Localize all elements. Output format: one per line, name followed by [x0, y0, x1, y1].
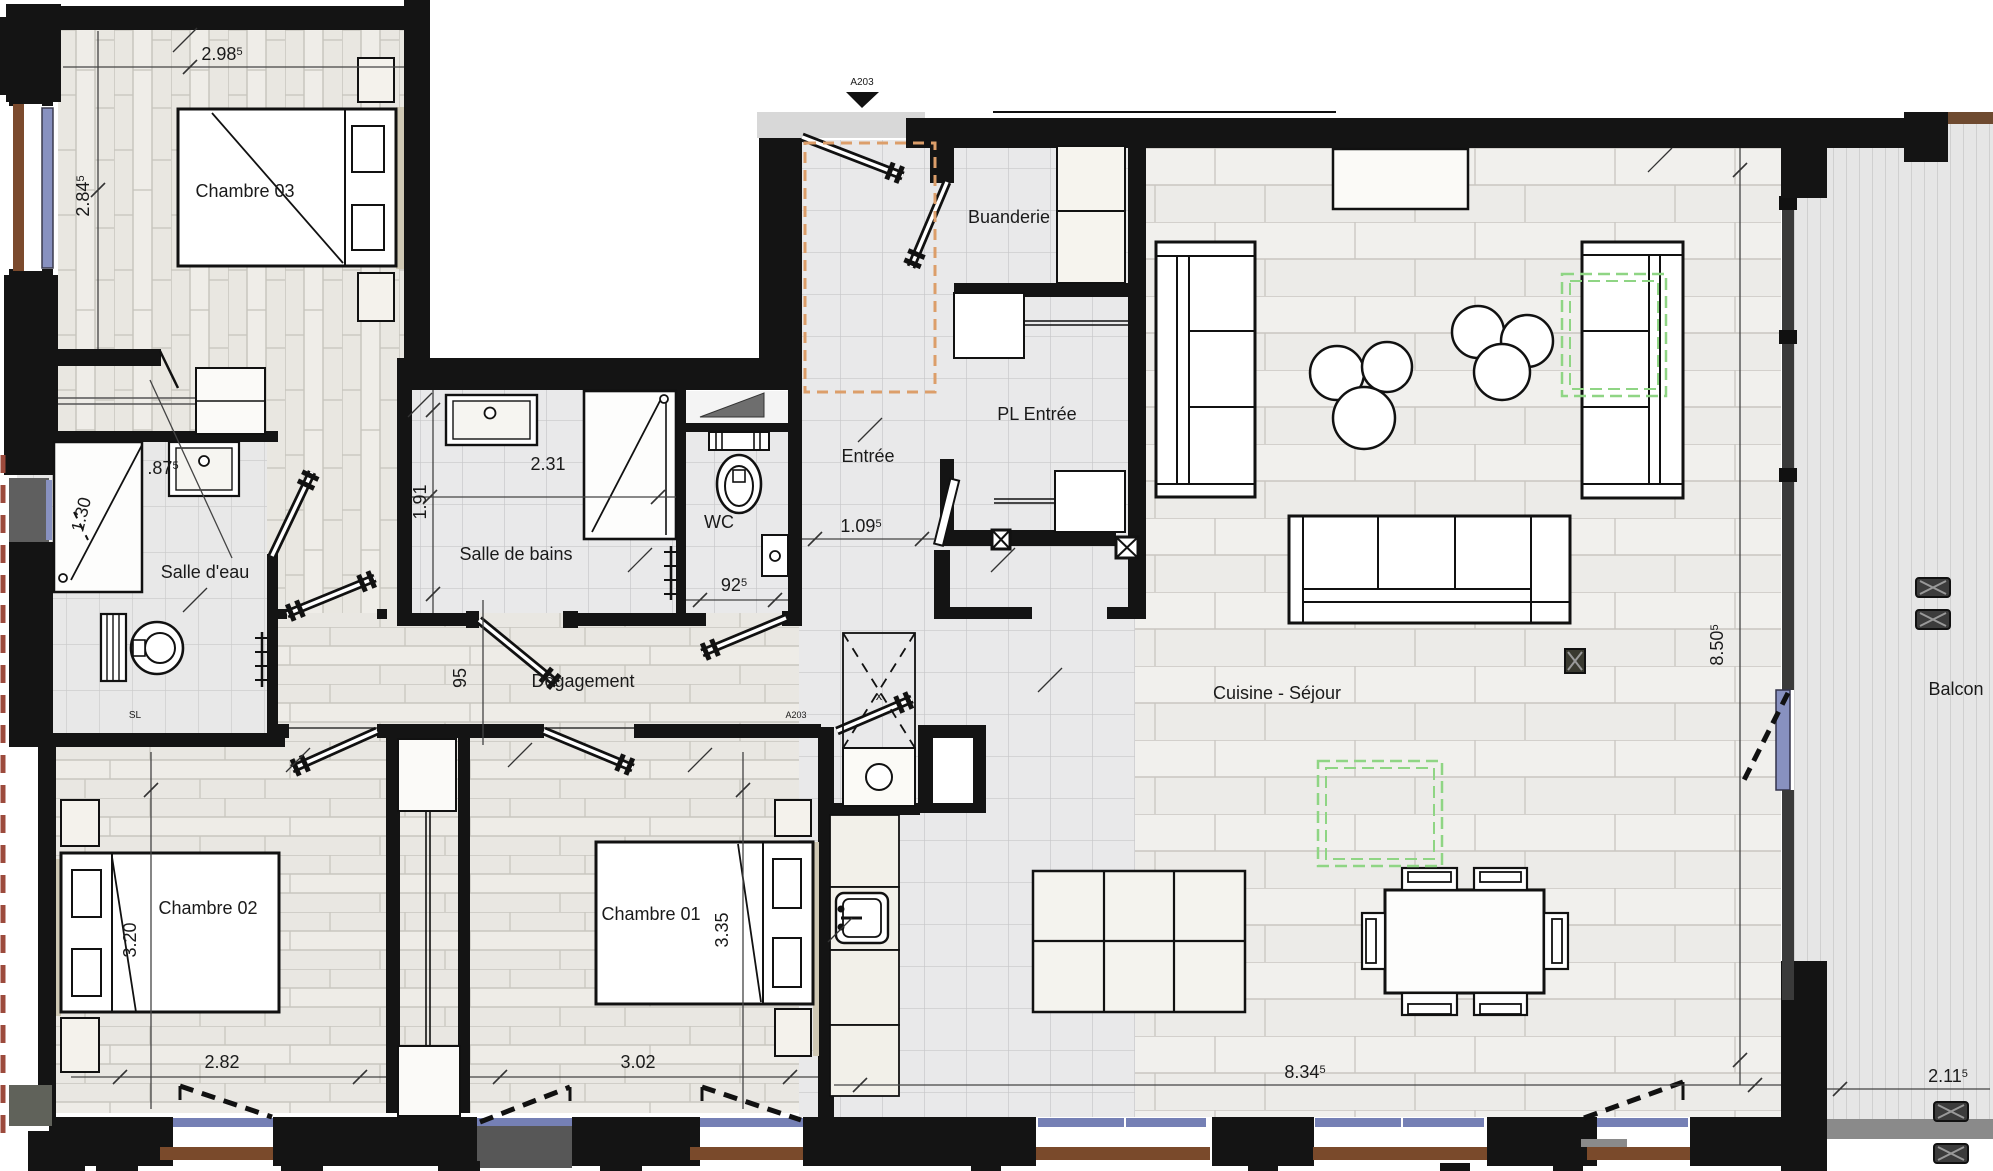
svg-text:2.82: 2.82: [204, 1052, 239, 1072]
svg-text:8.505: 8.505: [1707, 624, 1727, 665]
svg-text:Entrée: Entrée: [841, 446, 894, 466]
svg-text:Chambre 01: Chambre 01: [601, 904, 700, 924]
svg-text:x: x: [876, 688, 883, 703]
svg-text:Buanderie: Buanderie: [968, 207, 1050, 227]
svg-text:Chambre 02: Chambre 02: [158, 898, 257, 918]
svg-text:Salle de bains: Salle de bains: [459, 544, 572, 564]
svg-text:1.91: 1.91: [410, 484, 430, 519]
svg-text:A203: A203: [785, 710, 806, 720]
svg-text:Dégagement: Dégagement: [531, 671, 634, 691]
svg-text:WC: WC: [704, 512, 734, 532]
svg-text:SL: SL: [129, 710, 142, 721]
svg-text:1.095: 1.095: [840, 516, 881, 536]
svg-text:3.02: 3.02: [620, 1052, 655, 1072]
svg-text:PL Entrée: PL Entrée: [997, 404, 1076, 424]
svg-text:Chambre 03: Chambre 03: [195, 181, 294, 201]
svg-text:2.985: 2.985: [201, 44, 242, 64]
svg-text:2.31: 2.31: [530, 454, 565, 474]
svg-text:2.845: 2.845: [73, 175, 93, 216]
svg-text:Balcon: Balcon: [1928, 679, 1983, 699]
svg-text:Salle d'eau: Salle d'eau: [161, 562, 250, 582]
svg-text:3.20: 3.20: [120, 922, 140, 957]
svg-text:8.345: 8.345: [1284, 1062, 1325, 1082]
svg-text:Cuisine - Séjour: Cuisine - Séjour: [1213, 683, 1341, 703]
svg-text:95: 95: [450, 668, 470, 688]
svg-text:3.35: 3.35: [712, 912, 732, 947]
svg-text:A203: A203: [850, 77, 874, 88]
